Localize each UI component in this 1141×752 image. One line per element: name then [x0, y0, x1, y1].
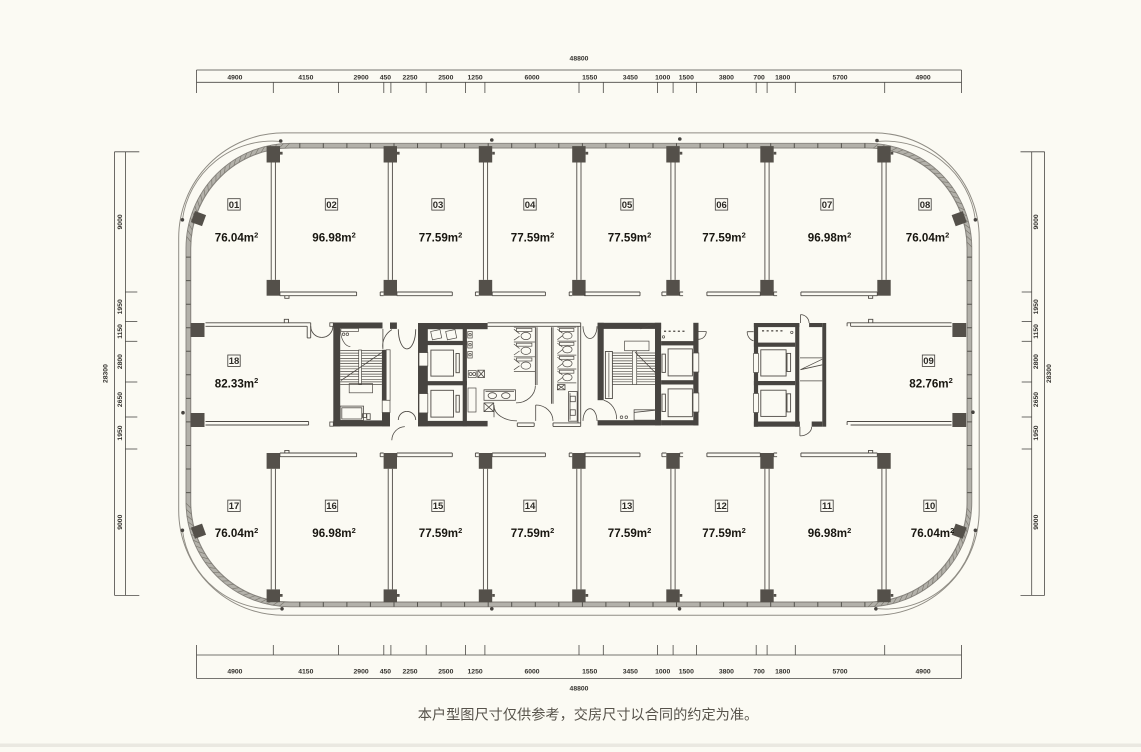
- svg-text:9000: 9000: [1033, 514, 1040, 529]
- svg-text:450: 450: [380, 669, 392, 676]
- svg-text:2500: 2500: [438, 74, 453, 81]
- svg-text:4150: 4150: [298, 74, 313, 81]
- svg-text:2650: 2650: [1033, 392, 1040, 407]
- svg-text:9000: 9000: [117, 214, 124, 229]
- svg-text:5700: 5700: [832, 74, 847, 81]
- svg-text:12: 12: [716, 501, 727, 512]
- svg-text:77.59m2: 77.59m2: [702, 230, 746, 244]
- svg-text:82.76m2: 82.76m2: [909, 376, 953, 390]
- svg-text:1500: 1500: [679, 669, 694, 676]
- svg-text:01: 01: [229, 200, 240, 211]
- svg-text:2800: 2800: [1033, 354, 1040, 369]
- svg-text:02: 02: [326, 200, 337, 211]
- svg-text:11: 11: [822, 501, 833, 512]
- svg-text:1550: 1550: [582, 669, 597, 676]
- svg-text:96.98m2: 96.98m2: [808, 230, 852, 244]
- svg-text:77.59m2: 77.59m2: [511, 230, 555, 244]
- svg-text:1950: 1950: [117, 425, 124, 440]
- svg-text:28300: 28300: [103, 364, 110, 383]
- svg-text:1250: 1250: [468, 669, 483, 676]
- svg-text:15: 15: [433, 501, 444, 512]
- svg-text:1250: 1250: [468, 74, 483, 81]
- svg-text:96.98m2: 96.98m2: [312, 526, 356, 540]
- svg-text:3800: 3800: [719, 74, 734, 81]
- svg-text:700: 700: [753, 669, 765, 676]
- svg-text:本户型图尺寸仅供参考，交房尺寸以合同的约定为准。: 本户型图尺寸仅供参考，交房尺寸以合同的约定为准。: [418, 707, 759, 724]
- svg-text:04: 04: [525, 200, 536, 211]
- svg-text:9000: 9000: [1033, 214, 1040, 229]
- svg-text:2250: 2250: [402, 669, 417, 676]
- svg-text:6000: 6000: [524, 669, 539, 676]
- svg-text:96.98m2: 96.98m2: [312, 230, 356, 244]
- svg-text:14: 14: [525, 501, 536, 512]
- svg-text:5700: 5700: [832, 669, 847, 676]
- svg-text:2250: 2250: [402, 74, 417, 81]
- svg-text:700: 700: [753, 74, 765, 81]
- svg-text:1950: 1950: [1033, 299, 1040, 314]
- svg-text:76.04m2: 76.04m2: [911, 526, 955, 540]
- svg-text:48800: 48800: [570, 56, 589, 63]
- svg-text:4900: 4900: [916, 669, 931, 676]
- svg-text:77.59m2: 77.59m2: [608, 230, 652, 244]
- svg-text:09: 09: [923, 356, 934, 367]
- svg-text:1550: 1550: [582, 74, 597, 81]
- svg-text:3450: 3450: [623, 74, 638, 81]
- svg-text:16: 16: [326, 501, 337, 512]
- svg-text:77.59m2: 77.59m2: [702, 526, 746, 540]
- svg-text:1800: 1800: [775, 669, 790, 676]
- svg-text:13: 13: [622, 501, 633, 512]
- svg-text:96.98m2: 96.98m2: [808, 526, 852, 540]
- svg-text:1150: 1150: [1033, 324, 1040, 339]
- svg-text:10: 10: [925, 501, 936, 512]
- svg-text:08: 08: [920, 200, 931, 211]
- svg-text:18: 18: [229, 356, 240, 367]
- svg-text:2500: 2500: [438, 669, 453, 676]
- svg-text:4900: 4900: [227, 74, 242, 81]
- svg-text:4900: 4900: [227, 669, 242, 676]
- svg-text:76.04m2: 76.04m2: [215, 526, 259, 540]
- svg-text:2900: 2900: [354, 74, 369, 81]
- svg-text:1950: 1950: [117, 299, 124, 314]
- svg-text:3800: 3800: [719, 669, 734, 676]
- svg-text:76.04m2: 76.04m2: [215, 230, 259, 244]
- svg-text:77.59m2: 77.59m2: [608, 526, 652, 540]
- svg-text:77.59m2: 77.59m2: [419, 526, 463, 540]
- svg-text:2650: 2650: [117, 392, 124, 407]
- svg-text:1500: 1500: [679, 74, 694, 81]
- svg-text:77.59m2: 77.59m2: [419, 230, 463, 244]
- svg-text:1950: 1950: [1033, 425, 1040, 440]
- svg-text:28300: 28300: [1046, 364, 1053, 383]
- svg-text:2900: 2900: [354, 669, 369, 676]
- svg-text:76.04m2: 76.04m2: [906, 230, 950, 244]
- svg-text:03: 03: [433, 200, 444, 211]
- svg-text:1000: 1000: [655, 74, 670, 81]
- svg-text:3450: 3450: [623, 669, 638, 676]
- svg-text:06: 06: [716, 200, 727, 211]
- svg-text:6000: 6000: [524, 74, 539, 81]
- svg-text:2800: 2800: [117, 354, 124, 369]
- svg-text:1150: 1150: [117, 324, 124, 339]
- svg-text:05: 05: [622, 200, 633, 211]
- svg-text:4150: 4150: [298, 669, 313, 676]
- svg-text:450: 450: [380, 74, 392, 81]
- svg-text:4900: 4900: [916, 74, 931, 81]
- svg-text:1800: 1800: [775, 74, 790, 81]
- svg-text:77.59m2: 77.59m2: [511, 526, 555, 540]
- svg-text:82.33m2: 82.33m2: [215, 376, 259, 390]
- svg-text:9000: 9000: [117, 514, 124, 529]
- svg-text:17: 17: [229, 501, 240, 512]
- svg-text:1000: 1000: [655, 669, 670, 676]
- svg-text:07: 07: [822, 200, 833, 211]
- svg-text:48800: 48800: [570, 686, 589, 693]
